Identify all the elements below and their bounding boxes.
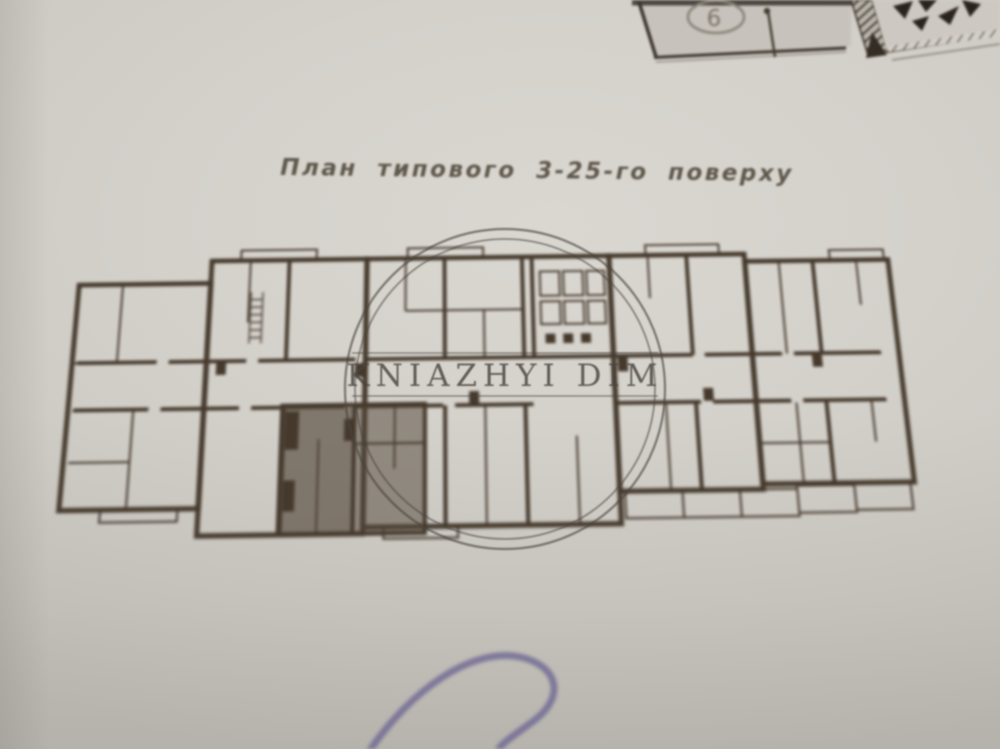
floor-plan-title: План типового 3-25-го поверху [262, 155, 812, 188]
floor-plan-photo: 6 План типового 3-25-го поверху [0, 0, 1000, 749]
corner-sheet-fragment: 6 [0, 0, 1000, 90]
pen-stroke [300, 635, 640, 749]
highlighted-apartment [278, 404, 425, 535]
floor-plan-drawing [40, 239, 933, 547]
block-left [59, 283, 211, 510]
balconies [97, 242, 916, 543]
stair-core [532, 256, 614, 357]
stair-ladder [249, 292, 263, 343]
block-d [609, 254, 764, 491]
pen-stroke-path [368, 656, 554, 749]
room-number-label: 6 [707, 6, 722, 32]
corridor-walls [73, 352, 887, 410]
